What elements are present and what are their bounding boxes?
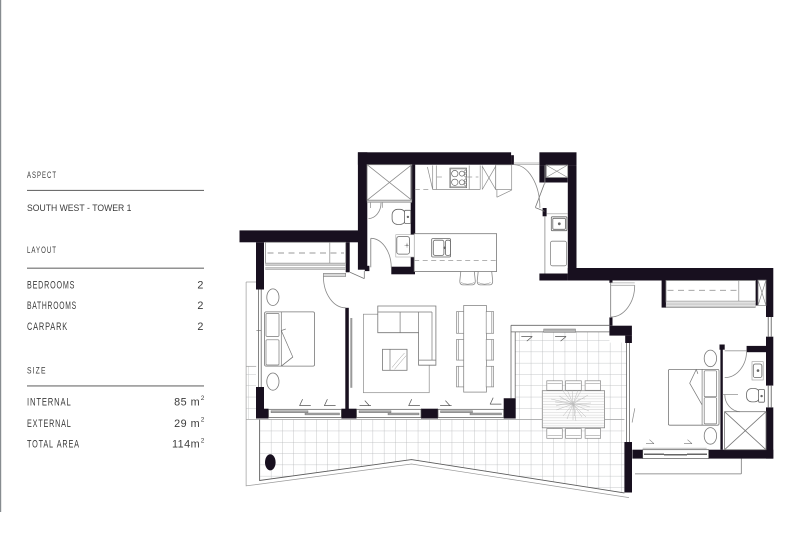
svg-text:2: 2 <box>197 321 203 333</box>
svg-text:BEDROOMS: BEDROOMS <box>27 280 75 292</box>
svg-text:SIZE: SIZE <box>27 365 47 375</box>
svg-text:85 m: 85 m <box>174 397 200 409</box>
svg-text:2: 2 <box>201 437 205 444</box>
svg-text:INTERNAL: INTERNAL <box>27 397 72 409</box>
svg-text:SOUTH WEST - TOWER 1: SOUTH WEST - TOWER 1 <box>27 203 132 213</box>
svg-text:2: 2 <box>197 280 203 292</box>
svg-text:29 m: 29 m <box>174 418 200 430</box>
svg-text:BATHROOMS: BATHROOMS <box>27 300 77 312</box>
svg-text:LAYOUT: LAYOUT <box>27 245 57 255</box>
svg-text:EXTERNAL: EXTERNAL <box>27 418 72 430</box>
svg-text:2: 2 <box>201 395 205 402</box>
svg-text:2: 2 <box>201 417 205 424</box>
svg-text:114m: 114m <box>172 439 200 451</box>
svg-text:ASPECT: ASPECT <box>27 170 57 180</box>
svg-text:TOTAL AREA: TOTAL AREA <box>27 439 80 451</box>
svg-text:2: 2 <box>197 300 203 312</box>
svg-text:CARPARK: CARPARK <box>27 321 68 333</box>
